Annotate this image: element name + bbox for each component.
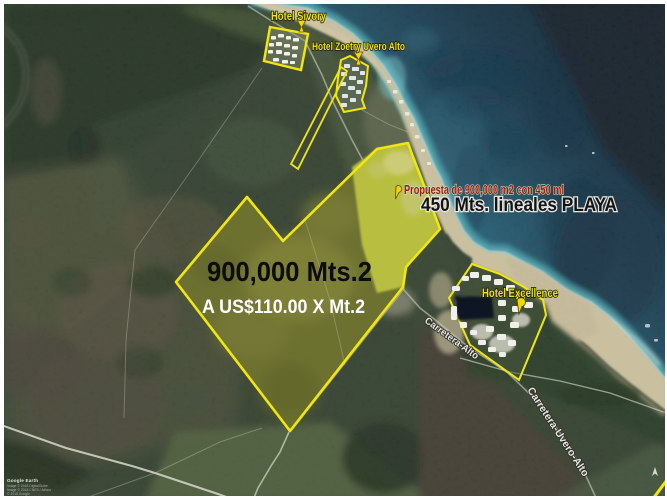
svg-text:Google Earth: Google Earth [7, 478, 38, 483]
svg-text:900,000 Mts.2: 900,000 Mts.2 [207, 256, 372, 287]
svg-text:450 Mts. lineales PLAYA: 450 Mts. lineales PLAYA [421, 195, 617, 216]
svg-text:A US$110.00 X Mt.2: A US$110.00 X Mt.2 [202, 297, 365, 318]
svg-text:Hotel Zoetry Uvero Alto: Hotel Zoetry Uvero Alto [312, 41, 405, 53]
svg-text:Hotel Sivory: Hotel Sivory [271, 11, 326, 23]
svg-text:Hotel Excellence: Hotel Excellence [482, 288, 558, 300]
svg-text:© 2018 Google: © 2018 Google [7, 492, 30, 496]
